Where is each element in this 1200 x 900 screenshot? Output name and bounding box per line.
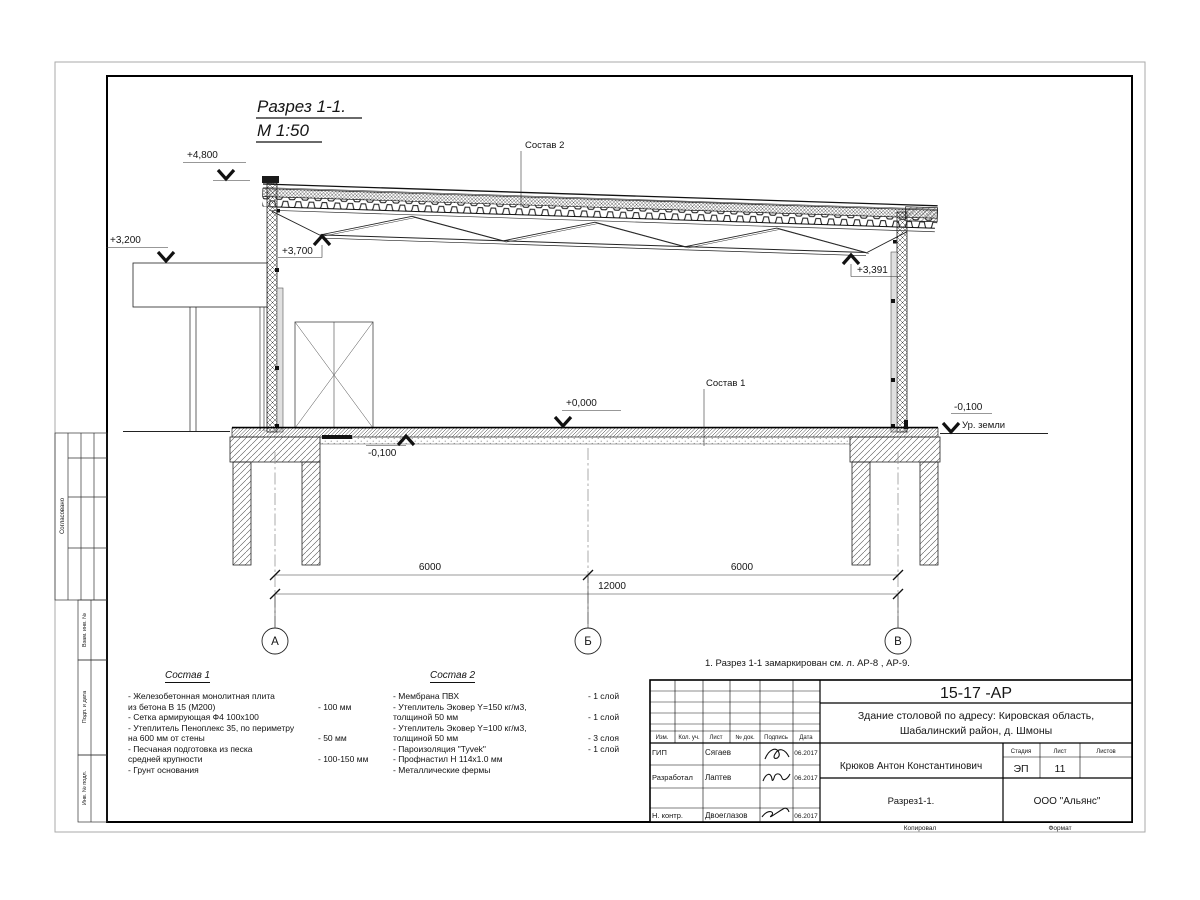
left-column [277,288,283,432]
composition2-list: - Мембрана ПВХ - 1 слой - Утеплитель Эко… [393,691,638,775]
stamp-name-2: Двоеглазов [705,811,748,820]
list-item: - Мембрана ПВХ - 1 слой [393,691,638,702]
plinth-detail [904,420,908,429]
dim-total: 12000 [598,581,626,592]
stamp-object-line1: Здание столовой по адресу: Кировская обл… [858,710,1094,722]
grid-axes [275,448,898,627]
roof-assembly [261,184,937,258]
comp2-callout: Состав 2 [525,140,564,151]
stamp-customer: Крюков Антон Константинович [840,761,982,772]
list-item: - Грунт основания [128,765,383,776]
title-block: Изм. Кол. уч. Лист № док. Подпись Дата Г… [650,680,1132,832]
stamp-col-podpis: Подпись [764,735,788,741]
stamp-copied-label: Копировал [904,825,937,832]
drawing-sheet: Согласовано Взам. инв. № Подп. и дата Ин… [0,0,1200,900]
entrance-canopy [133,263,267,431]
elevation-slab-edge: -0,100 [368,448,397,459]
dimension-lines [275,575,898,628]
list-item: - Утеплитель Эковер Y=150 кг/м3, толщино… [393,702,638,723]
side-label-podp: Подп. и дата [82,690,88,723]
side-label-inv: Инв. № подл. [82,770,88,805]
composition2-title: Состав 2 [430,670,475,683]
view-scale: М 1:50 [257,121,310,140]
stamp-col-izm: Изм. [656,735,669,741]
side-strip [55,433,107,822]
list-item: - Металлические фермы [393,765,638,776]
list-item: - Сетка армирующая Ф4 100х100 [128,712,383,723]
list-item: - Профнастил Н 114х1.0 мм [393,754,638,765]
grid-bubble-a: А [271,636,279,648]
side-label-vzam: Взам. инв. № [82,613,88,647]
side-label-approved: Согласовано [60,497,66,534]
roof-overhang-fascia [905,207,937,222]
stamp-date-1: 06.2017 [794,775,818,782]
stamp-role-1: Разработал [652,773,693,782]
comp1-callout: Состав 1 [706,378,745,389]
stamp-object-line2: Шабалинский район, д. Шмоны [900,725,1052,737]
stamp-doc-number: 15-17 -АР [940,685,1012,702]
list-item: - Утеплитель Эковер Y=100 кг/м3, толщино… [393,723,638,744]
stamp-col-list: Лист [709,735,722,741]
parapet-cap [262,176,279,183]
elevation-truss-right: +3,391 [857,265,888,276]
stamp-sheet-value: 11 [1055,763,1066,775]
ground-level-label: Ур. земли [962,420,1005,431]
stamp-col-ndok: № док. [735,734,755,741]
stamp-role-2: Н. контр. [652,811,683,820]
dim-span-right: 6000 [731,562,754,573]
stamp-stage-value: ЭП [1013,763,1028,775]
left-wall [267,183,277,432]
right-wall [897,212,907,432]
list-item: - Утеплитель Пеноплекс 35, по периметру … [128,723,383,744]
elevation-roof-top: +4,800 [187,150,218,161]
grid-bubble-v: В [894,636,902,648]
elevation-ground: -0,100 [954,402,983,413]
stamp-name-1: Лаптев [705,773,731,782]
list-item: - Железобетонная монолитная плита из бет… [128,691,383,712]
dim-span-left: 6000 [419,562,442,573]
stamp-col-kol: Кол. уч. [678,735,700,741]
right-column [891,252,897,432]
stamp-company: ООО "Альянс" [1034,796,1101,807]
elevation-floor: +0,000 [566,398,597,409]
list-item: - Пароизоляция "Tyvek" - 1 слой [393,744,638,755]
elevation-canopy: +3,200 [110,235,141,246]
composition1-list: - Железобетонная монолитная плита из бет… [128,691,383,775]
stamp-date-0: 06.2017 [794,750,818,757]
composition1-title: Состав 1 [165,670,210,683]
stamp-date-2: 06.2017 [794,813,818,820]
slab-edge-detail [322,435,352,439]
elevation-truss-left: +3,700 [282,246,313,257]
grid-bubble-b: Б [584,636,592,648]
sheet-note: 1. Разрез 1-1 замаркирован см. л. АР-8 ,… [705,658,910,669]
stamp-sheets-label: Листов [1096,749,1116,755]
stamp-stage-label: Стадия [1011,749,1031,755]
right-foundation [850,437,940,462]
stamp-col-data: Дата [799,735,813,741]
stamp-role-0: ГИП [652,748,667,757]
view-title: Разрез 1-1. [257,97,346,116]
stamp-name-0: Сягаев [705,748,731,757]
dimension-ticks [270,570,903,599]
stamp-sheet-label: Лист [1053,749,1066,755]
stamp-format-label: Формат [1048,825,1071,832]
list-item: - Песчаная подготовка из песка средней к… [128,744,383,765]
door-panel [295,322,373,428]
stamp-drawing-title: Разрез1-1. [888,796,935,807]
foundation-piers [233,462,938,565]
